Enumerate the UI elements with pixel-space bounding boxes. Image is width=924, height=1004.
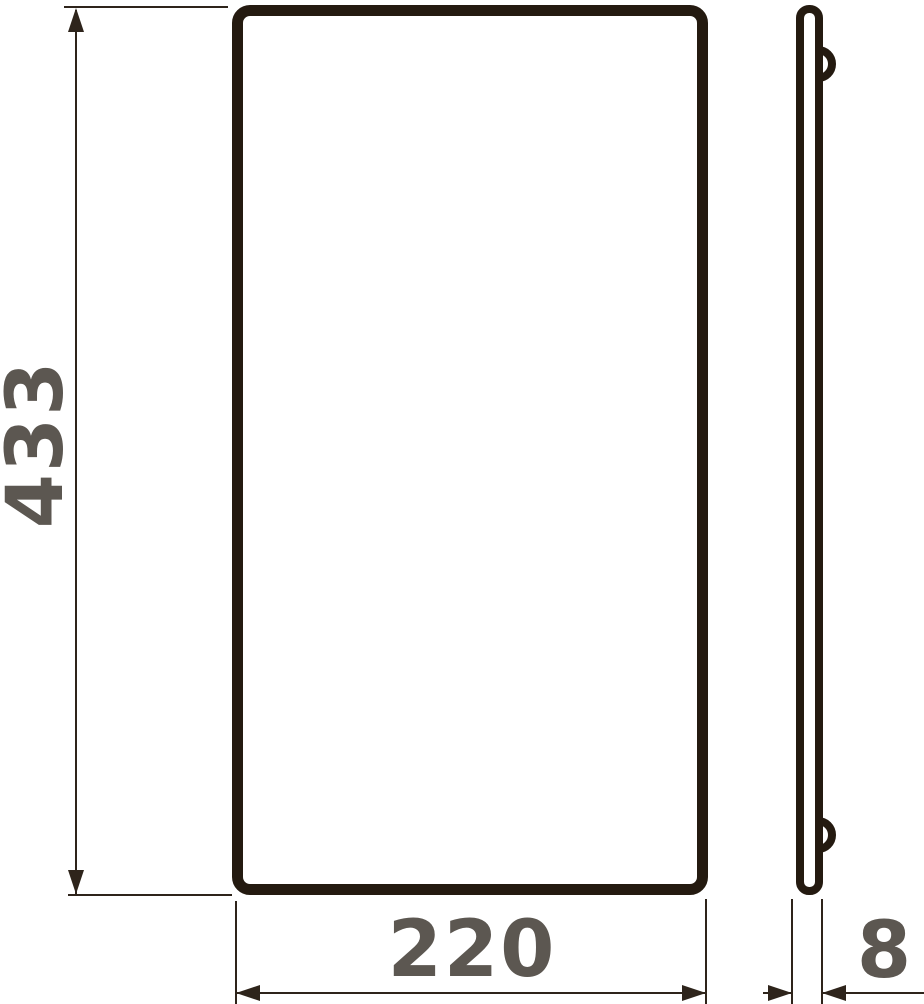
side-panel-outline bbox=[796, 5, 823, 895]
height-arrow-up-icon bbox=[68, 8, 84, 32]
height-arrow-down-icon bbox=[68, 870, 84, 894]
width-arrow-right-icon bbox=[682, 985, 706, 1001]
height-dimension-label: 433 bbox=[0, 360, 75, 529]
height-extension-line-top bbox=[64, 6, 228, 8]
drawing-canvas: 433 220 8 bbox=[0, 0, 924, 1004]
width-arrow-left-icon bbox=[236, 985, 260, 1001]
front-panel-outline bbox=[232, 5, 708, 895]
height-extension-line-bottom bbox=[68, 894, 232, 896]
thickness-arrow-inward-left-icon bbox=[768, 985, 792, 1001]
thickness-dimension-label: 8 bbox=[857, 912, 913, 990]
width-dimension-label: 220 bbox=[388, 911, 557, 989]
